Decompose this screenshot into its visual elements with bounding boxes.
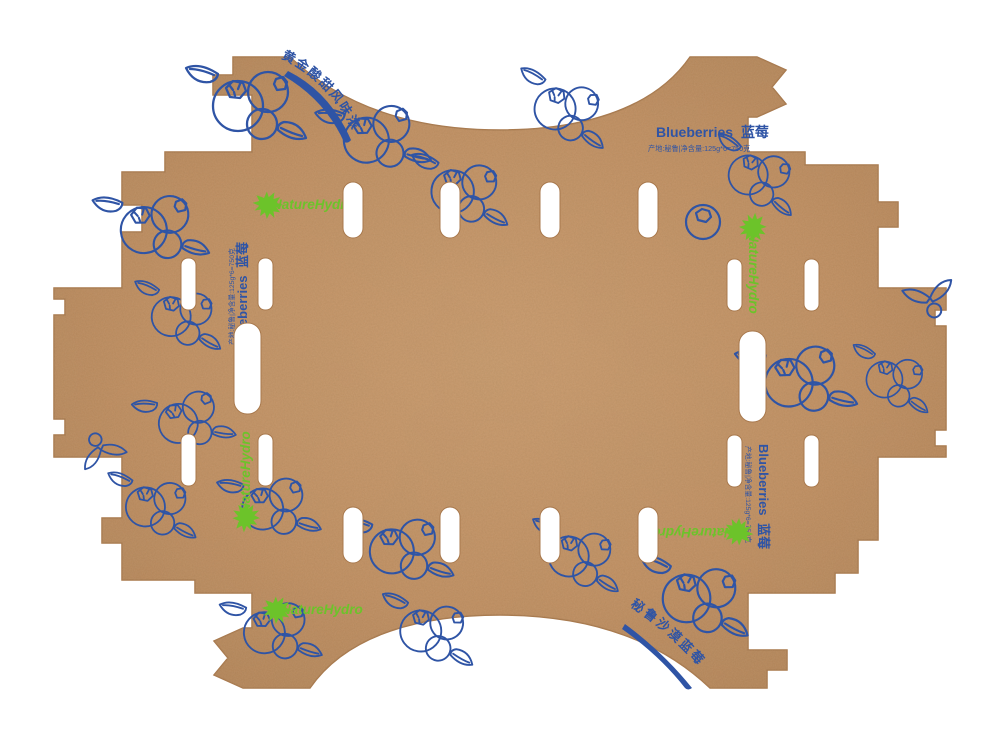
product-name-zh: 蓝莓 (756, 523, 771, 549)
die-cut-slot-large (234, 323, 261, 414)
product-name-en: Blueberries (756, 444, 771, 516)
die-cut-slot (638, 507, 658, 563)
product-label-top-right: Blueberries 蓝莓 产地:秘鲁|净含量:125g*6=750克 (648, 124, 769, 153)
die-cut-slot (258, 434, 273, 486)
die-cut-slot (258, 258, 273, 310)
die-cut-slot (540, 507, 560, 563)
svg-text:Blueberries 蓝莓: Blueberries 蓝莓 (656, 124, 769, 140)
die-cut-slot (440, 507, 460, 563)
origin-netweight-text: 产地:秘鲁|净含量:125g*6=750克 (648, 144, 750, 153)
die-cut-slot (727, 259, 742, 311)
die-cut-slot (440, 182, 460, 238)
die-cut-slot (181, 434, 196, 486)
product-name-zh: 蓝莓 (741, 124, 769, 140)
package-dieline-canvas: NatureHydro 黄金酸甜风味浓 (0, 0, 1000, 745)
die-cut-slot (540, 182, 560, 238)
product-name-en: Blueberries (656, 124, 733, 140)
die-cut-slot (727, 435, 742, 487)
screenshot-root: NatureHydro 黄金酸甜风味浓 (0, 0, 1000, 745)
die-cut-slot (343, 507, 363, 563)
kraft-paper-texture (0, 0, 1000, 745)
die-cut-slot (343, 182, 363, 238)
die-cut-slot (804, 259, 819, 311)
product-name-zh: 蓝莓 (235, 242, 250, 268)
svg-text:Blueberries 蓝莓: Blueberries 蓝莓 (756, 444, 771, 549)
die-cut-slot (181, 258, 196, 310)
die-cut-slot (804, 435, 819, 487)
die-cut-slot (638, 182, 658, 238)
die-cut-slot-large (739, 331, 766, 422)
